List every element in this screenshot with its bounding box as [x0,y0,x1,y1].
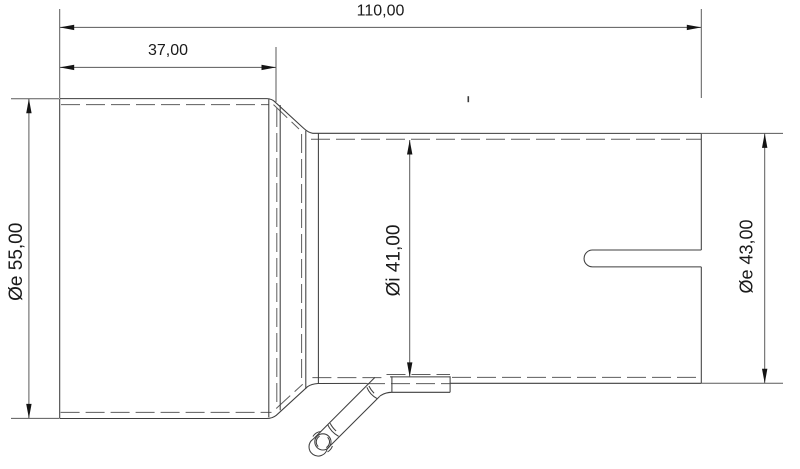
svg-text:Øi 41,00: Øi 41,00 [384,225,405,297]
svg-text:Øe 55,00: Øe 55,00 [6,223,27,301]
svg-text:37,00: 37,00 [148,42,188,59]
svg-text:110,00: 110,00 [357,3,405,20]
svg-text:Øe 43,00: Øe 43,00 [737,219,757,293]
